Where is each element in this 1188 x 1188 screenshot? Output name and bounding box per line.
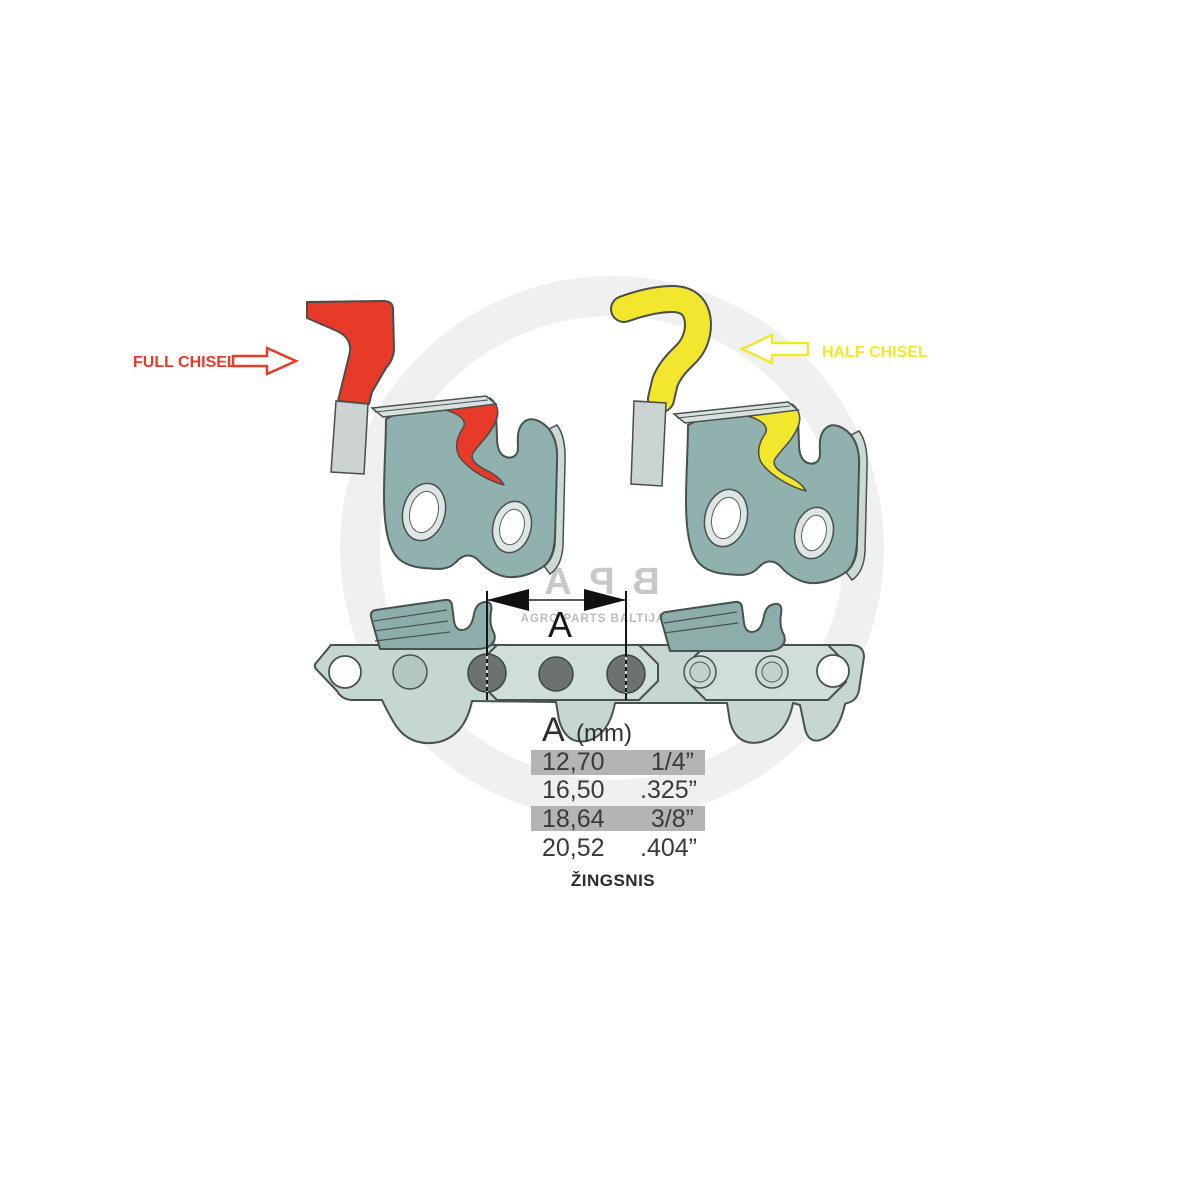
cell-mm: 18,64 [542,805,605,833]
chain-hole-shaded [393,655,427,689]
full-chisel-cutter [372,396,565,577]
chain-rivet-dark [539,657,573,691]
cell-mm: 12,70 [542,748,605,776]
cell-inch: 1/4” [651,748,694,776]
full-chisel-profile-shank [331,401,368,474]
table-header-letter: A [542,711,565,749]
chain-hole-empty [329,656,361,688]
chain-cutter-right [661,602,785,651]
full-chisel-arrow-right-icon [233,348,296,374]
half-chisel-cutter [674,402,867,583]
cell-mm: 20,52 [542,834,605,862]
diagram-svg: A P B AGRO PARTS BALTIJA FULL CHISEL HAL… [0,0,1188,1188]
watermark-tagline: AGRO PARTS BALTIJA [521,613,666,625]
chainsaw-chain-diagram: A P B AGRO PARTS BALTIJA FULL CHISEL HAL… [0,0,1188,1188]
chain-cutter-left [371,600,495,649]
pitch-caption: ŽINGSNIS [571,871,655,890]
chain-rivet-flat-center [690,662,710,682]
table-header-unit: (mm) [576,720,632,747]
dimension-arrowhead-left-icon [487,589,529,611]
chain-cutter-silhouette [371,600,495,649]
half-chisel-label: HALF CHISEL [822,344,928,361]
chain-rivet-flat-center [762,662,782,682]
cell-mm: 16,50 [542,776,605,804]
cell-inch: .404” [640,834,697,862]
half-chisel-profile-shank [631,401,666,486]
chain-cutter-silhouette [661,602,785,651]
full-chisel-label: FULL CHISEL [133,354,237,371]
full-chisel-profile-edge [307,301,394,404]
cell-inch: .325” [640,776,697,804]
cell-inch: 3/8” [651,805,694,833]
table-row: 20,52 .404” [542,834,697,862]
watermark-logo-letter: B [632,561,659,603]
chain-hole-empty [817,655,849,687]
dimension-letter: A [548,604,572,645]
